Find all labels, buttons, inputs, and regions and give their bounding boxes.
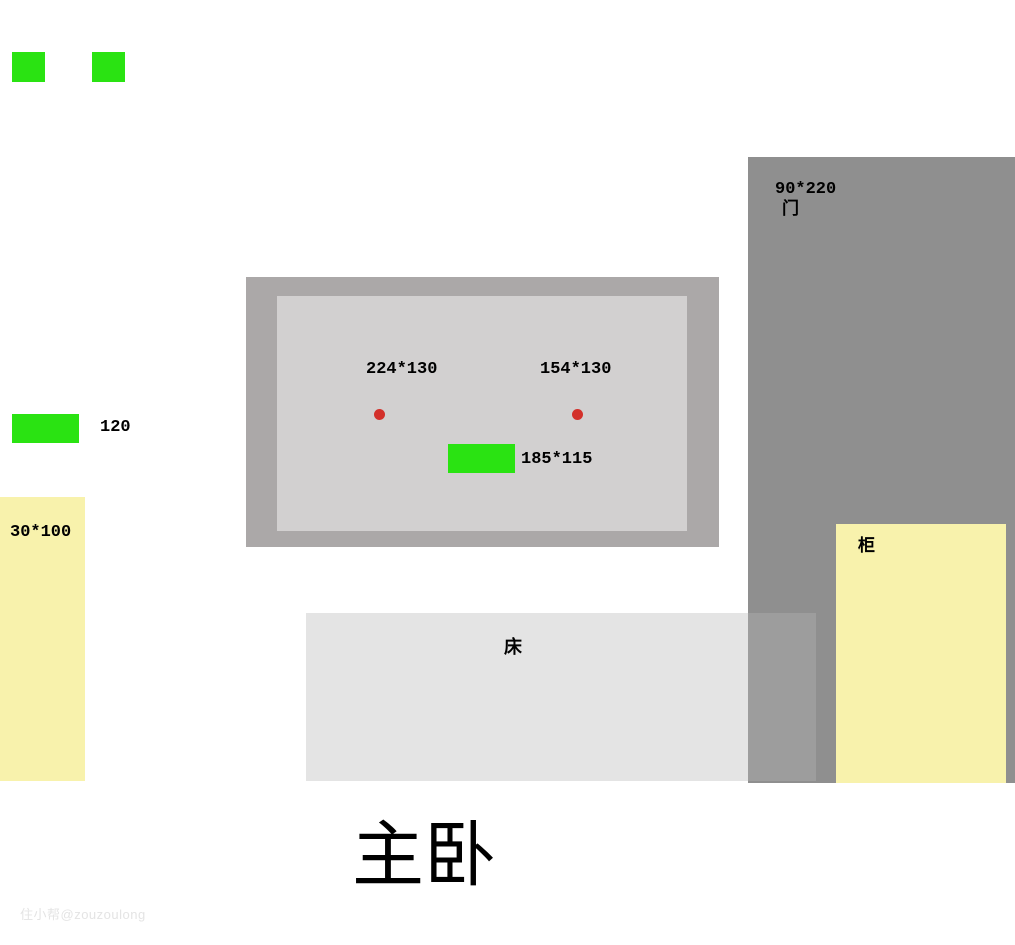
window-left-size-label: 224*130 xyxy=(366,361,437,378)
door-name-label: 门 xyxy=(782,200,799,217)
red-marker-dot-1[interactable] xyxy=(374,409,385,420)
green-bar-size-label: 120 xyxy=(100,419,131,436)
green-block-small-1[interactable] xyxy=(12,52,45,82)
green-block-small-2[interactable] xyxy=(92,52,125,82)
green-bar-shape[interactable] xyxy=(12,414,79,443)
cabinet-shape[interactable]: 柜 xyxy=(836,524,1006,783)
red-marker-dot-2[interactable] xyxy=(572,409,583,420)
window-frame-shape[interactable]: 224*130 154*130 185*115 xyxy=(246,277,719,547)
yellow-bar-size-label: 30*100 xyxy=(10,524,71,541)
cabinet-label: 柜 xyxy=(858,537,875,554)
yellow-bar-shape[interactable]: 30*100 xyxy=(0,497,85,781)
bed-shape[interactable]: 床 xyxy=(306,613,748,781)
room-title: 主卧 xyxy=(352,816,496,895)
window-green-block[interactable] xyxy=(448,444,515,473)
floor-plan-canvas: 90*220 门 224*130 154*130 185*115 120 30*… xyxy=(0,0,1015,945)
window-glass-shape[interactable] xyxy=(277,296,687,531)
window-right-size-label: 154*130 xyxy=(540,361,611,378)
door-size-label: 90*220 xyxy=(775,181,836,198)
window-sill-size-label: 185*115 xyxy=(521,451,592,468)
bed-label: 床 xyxy=(504,638,522,656)
watermark-text: 住小帮@zouzoulong xyxy=(20,904,146,923)
bed-door-overlap-region xyxy=(748,613,816,781)
